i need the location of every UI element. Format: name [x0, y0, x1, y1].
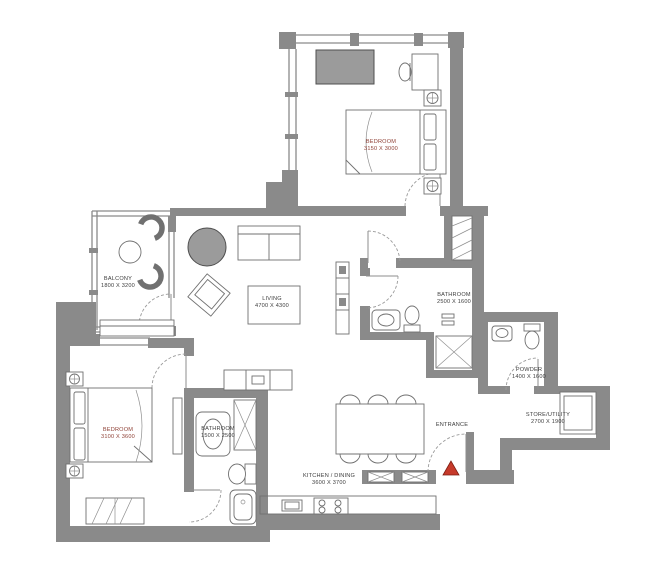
- room-label-store: STORE/UTILITY 2700 X 1900: [526, 412, 570, 425]
- room-label-entrance: ENTRANCE: [436, 422, 468, 428]
- sink-icon: [492, 326, 512, 341]
- kitchen-furniture: [260, 395, 436, 514]
- svg-text:BEDROOM: BEDROOM: [103, 427, 133, 433]
- chair-icon: [368, 454, 388, 463]
- svg-text:3100 X 3600: 3100 X 3600: [101, 434, 135, 440]
- chair-icon: [396, 454, 416, 463]
- kitchen-sink-icon: [282, 500, 302, 511]
- svg-text:STORE/UTILITY: STORE/UTILITY: [526, 412, 570, 418]
- room-label-bathroom-left: BATHROOM 1500 X 2500: [201, 426, 235, 439]
- svg-text:2700 X 1900: 2700 X 1900: [531, 419, 565, 425]
- floor-plan-drawing: BALCONY 1800 X 3200 LIVING 4700 X 4300 B…: [0, 0, 660, 564]
- svg-text:BATHROOM: BATHROOM: [437, 292, 471, 298]
- svg-text:BEDROOM: BEDROOM: [366, 139, 396, 145]
- toilet-icon: [404, 306, 420, 332]
- svg-text:1500 X 2500: 1500 X 2500: [201, 433, 235, 439]
- chair-icon: [368, 395, 388, 404]
- round-table-icon: [188, 228, 226, 266]
- floor-plan: BALCONY 1800 X 3200 LIVING 4700 X 4300 B…: [0, 0, 660, 564]
- svg-text:4700 X 4300: 4700 X 4300: [255, 303, 289, 309]
- bathroom-left-fixtures: [196, 400, 256, 524]
- walls: [56, 32, 610, 542]
- svg-text:BATHROOM: BATHROOM: [201, 426, 235, 432]
- towel-rail-icon: [442, 314, 454, 318]
- entrance-marker: [443, 461, 459, 475]
- wardrobe-icon: [86, 498, 144, 524]
- closet-icon: [452, 216, 472, 260]
- svg-text:LIVING: LIVING: [262, 296, 282, 302]
- room-label-bedroom-top: BEDROOM 3150 X 3000: [364, 139, 398, 152]
- room-label-balcony: BALCONY 1800 X 3200: [101, 276, 135, 289]
- media-unit-icon: [100, 320, 174, 336]
- balcony-chair-icon: [140, 266, 161, 287]
- nightstand-icon: [424, 178, 441, 194]
- balcony-table-icon: [119, 241, 141, 263]
- nightstand-icon: [66, 372, 83, 386]
- shower-icon: [436, 336, 472, 368]
- nightstand-icon: [66, 464, 83, 478]
- powder-fixtures: [492, 324, 540, 349]
- room-label-bathroom-top: BATHROOM 2500 X 1600: [437, 292, 471, 305]
- svg-text:1400 X 1600: 1400 X 1600: [512, 374, 546, 380]
- nightstand-icon: [424, 90, 441, 106]
- desk-icon: [399, 54, 438, 90]
- tv-console-icon: [224, 370, 292, 390]
- room-label-kitchen: KITCHEN / DINING 3600 X 3700: [303, 473, 355, 486]
- svg-text:KITCHEN / DINING: KITCHEN / DINING: [303, 473, 355, 479]
- living-furniture: [100, 226, 349, 390]
- chair-icon: [340, 454, 360, 463]
- svg-text:1800 X 3200: 1800 X 3200: [101, 283, 135, 289]
- counter-appliance-icon: [402, 472, 428, 482]
- stove-icon: [314, 498, 348, 514]
- toilet-icon: [524, 324, 540, 349]
- balcony-chair-icon: [141, 217, 162, 238]
- dresser-icon: [173, 398, 182, 454]
- dining-table-icon: [336, 395, 424, 463]
- sofa-icon: [238, 226, 300, 260]
- sink-icon: [372, 310, 400, 330]
- bathtub-icon: [230, 490, 256, 524]
- chair-icon: [340, 395, 360, 404]
- svg-text:3150 X 3000: 3150 X 3000: [364, 146, 398, 152]
- shelf-unit-icon: [336, 262, 349, 334]
- room-label-powder: POWDER 1400 X 1600: [512, 367, 546, 380]
- chair-icon: [396, 395, 416, 404]
- towel-rail-icon: [442, 321, 454, 325]
- bedroom-left-furniture: [66, 372, 182, 524]
- armchair-icon: [188, 274, 230, 316]
- svg-text:2500 X 1600: 2500 X 1600: [437, 299, 471, 305]
- svg-text:3600 X 3700: 3600 X 3700: [312, 480, 346, 486]
- room-label-bedroom-left: BEDROOM 3100 X 3600: [101, 427, 135, 440]
- counter-appliance-icon: [368, 472, 394, 482]
- bed-icon: [70, 388, 152, 462]
- bedroom-top-furniture: [316, 50, 446, 194]
- toilet-icon: [229, 464, 257, 484]
- shower-icon: [234, 400, 256, 450]
- wardrobe-icon: [316, 50, 374, 84]
- svg-text:BALCONY: BALCONY: [104, 276, 132, 282]
- svg-text:POWDER: POWDER: [516, 367, 542, 373]
- room-label-living: LIVING 4700 X 4300: [255, 296, 289, 309]
